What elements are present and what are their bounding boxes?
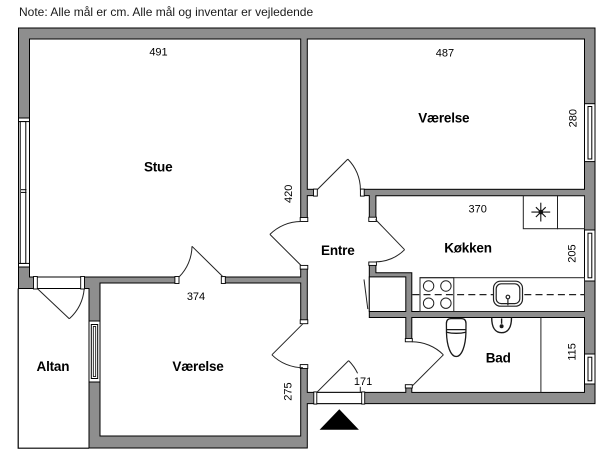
svg-text:491: 491: [149, 47, 167, 59]
svg-text:205: 205: [566, 244, 578, 262]
svg-text:280: 280: [567, 109, 579, 127]
svg-text:374: 374: [187, 291, 205, 303]
svg-text:171: 171: [354, 376, 372, 388]
svg-text:275: 275: [283, 382, 295, 400]
svg-text:Køkken: Køkken: [444, 241, 492, 256]
svg-text:Bad: Bad: [486, 351, 511, 366]
svg-text:Note: Alle mål er cm. Alle mål: Note: Alle mål er cm. Alle mål og invent…: [19, 5, 313, 19]
svg-text:Altan: Altan: [37, 359, 70, 374]
svg-text:420: 420: [283, 185, 295, 203]
svg-text:Værelse: Værelse: [418, 111, 470, 126]
svg-text:Værelse: Værelse: [172, 359, 224, 374]
svg-text:370: 370: [469, 204, 487, 216]
svg-text:487: 487: [436, 47, 454, 59]
svg-text:Stue: Stue: [144, 160, 173, 175]
svg-text:Entre: Entre: [321, 243, 355, 258]
svg-text:115: 115: [567, 343, 579, 361]
